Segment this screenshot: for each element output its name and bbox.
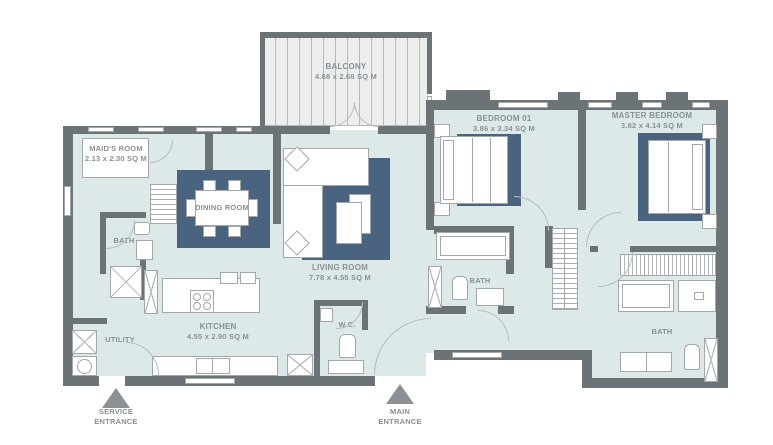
bed-pillow (692, 144, 703, 210)
living-room-label: LIVING ROOM 7.78 x 4.55 SQ M (309, 263, 371, 283)
kitchen-label: KITCHEN 4.55 x 2.90 SQ M (187, 322, 249, 342)
washer (72, 330, 97, 354)
master-bath-label: BATH (651, 327, 672, 337)
sink-divider (646, 352, 647, 372)
nightstand (702, 124, 717, 139)
column (666, 92, 688, 106)
main-entrance-line2: ENTRANCE (378, 417, 421, 427)
window (498, 102, 548, 108)
dining-room-label: DINING ROOM (195, 203, 249, 213)
bedroom-bath-name: BATH (469, 276, 490, 286)
window (88, 127, 114, 132)
window (138, 127, 164, 132)
mattress-line (668, 142, 669, 212)
wardrobe-divider (644, 255, 645, 275)
sink (136, 240, 153, 260)
wall (73, 318, 107, 324)
window (452, 352, 502, 358)
dining-chair (203, 226, 216, 237)
bathtub-inner (440, 236, 506, 256)
service-entrance-label: SERVICE ENTRANCE (94, 407, 137, 427)
wall (362, 306, 368, 330)
dryer-door-icon (77, 359, 92, 374)
column (446, 90, 490, 108)
nightstand (434, 202, 450, 216)
master-bedroom-name: MASTER BEDROOM (612, 111, 693, 121)
burner-icon (193, 302, 201, 310)
bathtub-inner (622, 284, 670, 308)
kitchen-appliance (240, 272, 256, 284)
balcony-name: BALCONY (315, 62, 377, 72)
main-entrance-arrow (386, 384, 414, 404)
column (616, 92, 638, 106)
wall (260, 32, 265, 126)
kitchen-sink (196, 358, 230, 374)
service-entrance-line2: ENTRANCE (94, 417, 137, 427)
toilet (684, 344, 700, 370)
wc-vanity (328, 360, 364, 374)
hall-closet (552, 228, 578, 310)
wardrobe-divider (692, 255, 693, 275)
burner-icon (203, 302, 211, 310)
dining-chair (248, 199, 258, 217)
bedroom01-label: BEDROOM 01 3.86 x 3.34 SQ M (473, 114, 535, 134)
toilet (452, 276, 468, 300)
maids-closet (150, 184, 177, 224)
wall (263, 126, 330, 134)
shower (110, 266, 142, 298)
closet (144, 270, 158, 314)
wardrobe-divider (668, 255, 669, 275)
main-entrance-label: MAIN ENTRANCE (378, 407, 421, 427)
nightstand (702, 214, 717, 229)
fridge (287, 354, 313, 376)
wall (578, 110, 586, 210)
burner-icon (203, 293, 211, 301)
bedroom01-dims: 3.86 x 3.34 SQ M (473, 124, 535, 134)
window (196, 127, 222, 132)
kitchen-appliance (220, 272, 238, 284)
master-bedroom-label: MASTER BEDROOM 3.82 x 4.14 SQ M (612, 111, 693, 131)
dining-chair (228, 226, 241, 237)
maids-room-name: MAID'S ROOM (85, 144, 147, 154)
closet (428, 266, 442, 308)
main-entrance-line1: MAIN (378, 407, 421, 417)
dining-room-name: DINING ROOM (195, 203, 249, 213)
window (236, 127, 252, 132)
living-room-dims: 7.78 x 4.55 SQ M (309, 273, 371, 283)
wall (630, 246, 716, 252)
wall (260, 32, 432, 38)
balcony-label: BALCONY 4.68 x 2.68 SQ M (315, 62, 377, 82)
toilet (339, 334, 356, 358)
living-room-name: LIVING ROOM (309, 263, 371, 273)
wall (426, 110, 434, 230)
closet-divider (564, 229, 565, 309)
window (64, 186, 71, 216)
master-bedroom-dims: 3.82 x 4.14 SQ M (612, 121, 693, 131)
wall (498, 306, 514, 314)
service-entrance-line1: SERVICE (94, 407, 137, 417)
sink-divider (212, 358, 213, 374)
shower-head-icon (694, 292, 704, 300)
column (558, 92, 580, 106)
burner-icon (193, 293, 201, 301)
linen-closet (704, 338, 718, 382)
mattress-line (490, 138, 491, 202)
toilet (134, 222, 150, 235)
bed-pillow (443, 140, 454, 200)
sink (320, 308, 333, 322)
bedroom-bath-label: BATH (469, 276, 490, 286)
wall (273, 134, 281, 224)
service-entrance-arrow (102, 388, 130, 408)
window (185, 378, 235, 384)
wall (427, 32, 432, 94)
wall (100, 212, 146, 218)
maids-room-label: MAID'S ROOM 2.13 x 2.30 SQ M (85, 144, 147, 164)
bedroom01-name: BEDROOM 01 (473, 114, 535, 124)
floor-plan: BALCONY 4.68 x 2.68 SQ M (0, 0, 773, 445)
window (692, 102, 710, 108)
window (588, 102, 612, 108)
maids-room-dims: 2.13 x 2.30 SQ M (85, 154, 147, 164)
mattress-line (472, 138, 473, 202)
coffee-table (336, 202, 362, 244)
wall (63, 376, 99, 386)
sink (476, 288, 504, 306)
master-bath-name: BATH (651, 327, 672, 337)
window (642, 102, 662, 108)
kitchen-name: KITCHEN (187, 322, 249, 332)
wall (125, 376, 375, 386)
balcony-dims: 4.68 x 2.68 SQ M (315, 72, 377, 82)
kitchen-dims: 4.55 x 2.90 SQ M (187, 332, 249, 342)
